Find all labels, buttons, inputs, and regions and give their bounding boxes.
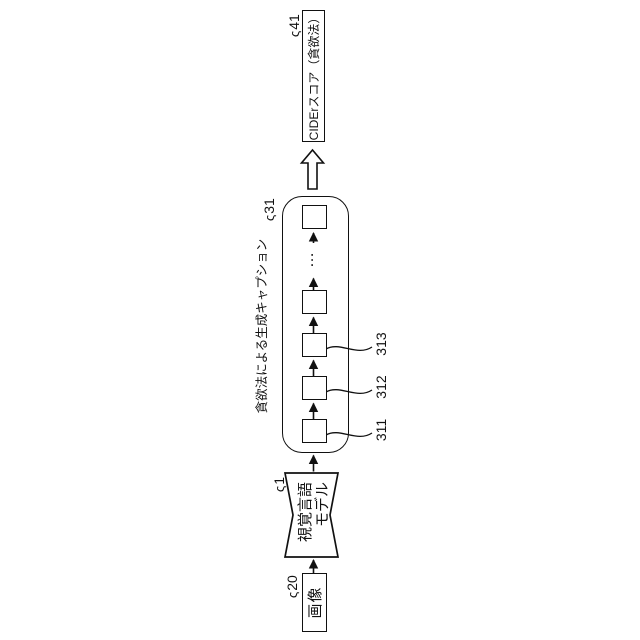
image-node: 画像	[302, 573, 327, 632]
token-box-4	[302, 290, 327, 314]
image-node-label: 画像	[304, 587, 325, 619]
token-box-1	[302, 419, 327, 443]
ellipsis-dots: …	[301, 244, 317, 274]
diagram-rotated-group: 画像 ς20 視覚言語 モデル ς1 貪欲法による生成キャプション ς31 … …	[245, 0, 395, 640]
caption-group-label: 貪欲法による生成キャプション	[255, 234, 270, 418]
ref-label-313: 313	[373, 329, 389, 359]
ref-label-20: ς20	[284, 575, 301, 598]
score-node-label: CIDErスコア（貪欲法）	[305, 12, 322, 141]
score-block-arrow	[302, 150, 324, 189]
ref-label-312: 312	[373, 372, 389, 402]
caption-group-box	[282, 196, 349, 453]
ref-number: 20	[284, 575, 300, 591]
ref-leader-icon: ς	[262, 215, 277, 221]
token-box-3	[302, 333, 327, 357]
ref-leader-icon: ς	[272, 486, 287, 492]
ref-number: 41	[286, 14, 302, 30]
ref-label-41: ς41	[286, 14, 303, 37]
patent-figure: 画像 ς20 視覚言語 モデル ς1 貪欲法による生成キャプション ς31 … …	[0, 0, 640, 640]
score-node: CIDErスコア（貪欲法）	[302, 10, 325, 142]
ref-leader-icon: ς	[287, 31, 302, 37]
token-box-5	[302, 205, 327, 229]
model-label-line2: モデル	[314, 482, 331, 552]
ref-number: 1	[271, 477, 287, 485]
vision-language-model-label: 視覚言語 モデル	[297, 482, 331, 552]
model-label-line1: 視覚言語	[297, 482, 314, 552]
ref-number: 31	[261, 198, 277, 214]
ref-label-311: 311	[373, 415, 389, 445]
ref-leader-icon: ς	[285, 592, 300, 598]
ref-label-1: ς1	[271, 477, 288, 492]
ref-label-31: ς31	[261, 198, 278, 221]
token-box-2	[302, 376, 327, 400]
